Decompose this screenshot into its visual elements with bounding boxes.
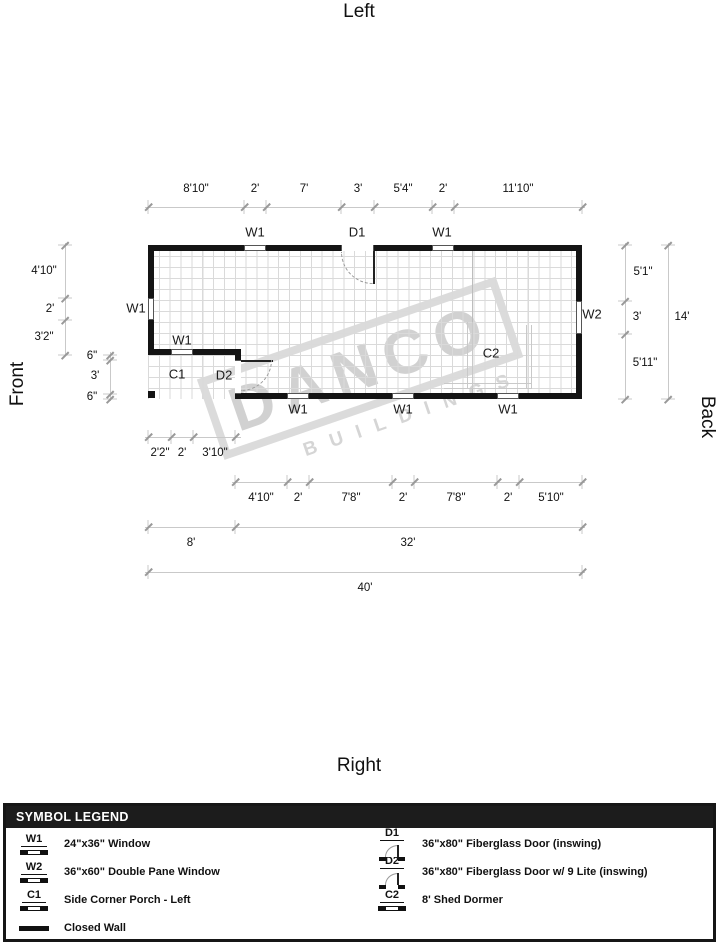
porch-glyph-icon bbox=[20, 906, 48, 911]
dim-label: 11'10" bbox=[502, 183, 533, 195]
dim-tick bbox=[618, 301, 632, 302]
dim-label: 40' bbox=[358, 582, 373, 594]
legend-row-c1: C1 Side Corner Porch - Left bbox=[14, 886, 372, 914]
label-c2: C2 bbox=[483, 346, 500, 361]
wall-glyph-icon bbox=[19, 926, 49, 931]
orientation-bottom-label: Right bbox=[337, 755, 381, 777]
dim-tick bbox=[103, 360, 117, 361]
dim-tick bbox=[497, 475, 498, 489]
dim-tick bbox=[103, 355, 117, 356]
legend-code: C1 bbox=[22, 889, 46, 903]
door-glyph-icon bbox=[379, 872, 405, 889]
legend-desc: 36"x80" Fiberglass Door w/ 9 Lite (inswi… bbox=[422, 866, 648, 878]
porch-symbol: C1 bbox=[14, 889, 54, 911]
dim-tick bbox=[618, 334, 632, 335]
dim-tick bbox=[58, 298, 72, 299]
dim-label: 2' bbox=[178, 447, 187, 459]
dim-label: 5'1" bbox=[633, 266, 652, 278]
dim-label: 3' bbox=[354, 183, 363, 195]
dim-tick bbox=[454, 200, 455, 214]
dim-label: 2' bbox=[504, 492, 513, 504]
porch-post bbox=[148, 391, 155, 398]
dim-tick bbox=[171, 430, 172, 444]
dim-tick bbox=[432, 200, 433, 214]
dim-label: 4'10" bbox=[31, 265, 56, 277]
dim-tick bbox=[235, 520, 236, 534]
window-glyph-icon bbox=[20, 878, 48, 883]
symbol-legend: SYMBOL LEGEND W1 24"x36" Window W2 36"x6… bbox=[3, 803, 716, 942]
dim-label: 3' bbox=[633, 311, 642, 323]
orientation-left-label: Front bbox=[7, 362, 29, 406]
dim-label: 5'4" bbox=[393, 183, 412, 195]
label-d2: D2 bbox=[216, 368, 233, 383]
orientation-top-label: Left bbox=[343, 1, 375, 23]
dim-tick bbox=[582, 475, 583, 489]
legend-code: W1 bbox=[21, 833, 48, 847]
label-w1-bottom-c: W1 bbox=[498, 402, 518, 417]
dim-label: 7' bbox=[300, 183, 309, 195]
dim-label: 5'11" bbox=[633, 357, 658, 369]
window-w2-right bbox=[576, 301, 582, 334]
window-w1-bottom-b bbox=[392, 393, 414, 399]
orientation-right-label: Back bbox=[696, 396, 718, 438]
dim-label: 2' bbox=[251, 183, 260, 195]
label-d1: D1 bbox=[349, 225, 366, 240]
dim-tick bbox=[392, 475, 393, 489]
dim-tick bbox=[148, 520, 149, 534]
dim-label: 3'10" bbox=[202, 447, 227, 459]
legend-desc: 8' Shed Dormer bbox=[422, 894, 503, 906]
floorplan-page: Left Right Front Back DANCO BUILDINGS W1… bbox=[0, 0, 719, 943]
dim-line-right-total bbox=[668, 243, 669, 399]
window-symbol: W2 bbox=[14, 861, 54, 883]
dim-tick bbox=[148, 200, 149, 214]
dim-label: 5'10" bbox=[538, 492, 563, 504]
legend-code: W2 bbox=[21, 861, 48, 875]
wall-symbol bbox=[14, 926, 54, 931]
dim-label: 8' bbox=[187, 537, 196, 549]
dormer-left-edge bbox=[467, 322, 473, 388]
dim-tick bbox=[374, 200, 375, 214]
dim-line-section-totals bbox=[145, 527, 585, 528]
label-w1-top-b: W1 bbox=[432, 225, 452, 240]
legend-row-d2: D2 36"x80" Fiberglass Door w/ 9 Lite (in… bbox=[372, 858, 713, 886]
dim-label: 3'2" bbox=[34, 331, 53, 343]
dim-label: 7'8" bbox=[446, 492, 465, 504]
dim-label: 7'8" bbox=[341, 492, 360, 504]
window-glyph-icon bbox=[20, 850, 48, 855]
dim-tick bbox=[661, 245, 675, 246]
dim-line-right-inner bbox=[625, 243, 626, 399]
label-w1-bottom-b: W1 bbox=[393, 402, 413, 417]
legend-row-d1: D1 36"x80" Fiberglass Door (inswing) bbox=[372, 830, 713, 858]
dim-tick bbox=[58, 355, 72, 356]
dim-tick bbox=[266, 200, 267, 214]
legend-row-w1: W1 24"x36" Window bbox=[14, 830, 372, 858]
dim-label: 8'10" bbox=[183, 183, 208, 195]
dim-tick bbox=[103, 394, 117, 395]
legend-row-w2: W2 36"x60" Double Pane Window bbox=[14, 858, 372, 886]
dormer-symbol: C2 bbox=[372, 889, 412, 911]
legend-row-c2: C2 8' Shed Dormer bbox=[372, 886, 713, 914]
dim-tick bbox=[519, 475, 520, 489]
dim-tick bbox=[244, 200, 245, 214]
window-w1-top-a bbox=[244, 245, 266, 251]
dim-label: 32' bbox=[401, 537, 416, 549]
dim-tick bbox=[148, 565, 149, 579]
window-w1-bottom-c bbox=[497, 393, 519, 399]
legend-desc: 24"x36" Window bbox=[64, 838, 150, 850]
label-w1-bottom-a: W1 bbox=[288, 402, 308, 417]
window-w1-top-b bbox=[432, 245, 454, 251]
dim-label: 2'2" bbox=[150, 447, 169, 459]
dim-tick bbox=[414, 475, 415, 489]
dim-tick bbox=[148, 430, 149, 444]
legend-row-wall: Closed Wall bbox=[14, 914, 372, 942]
door-d1-opening bbox=[341, 245, 374, 251]
dim-label: 2' bbox=[46, 303, 55, 315]
dim-label: 6" bbox=[87, 350, 97, 362]
dim-tick bbox=[582, 520, 583, 534]
dormer-right-edge bbox=[526, 325, 532, 388]
dim-label: 4'10" bbox=[248, 492, 273, 504]
legend-title: SYMBOL LEGEND bbox=[6, 806, 713, 828]
dim-tick bbox=[661, 399, 675, 400]
dim-tick bbox=[58, 245, 72, 246]
label-w1-left: W1 bbox=[126, 301, 146, 316]
label-c1: C1 bbox=[169, 367, 186, 382]
dim-tick bbox=[582, 200, 583, 214]
window-w1-porch bbox=[171, 349, 193, 355]
dim-tick bbox=[287, 475, 288, 489]
label-w2: W2 bbox=[582, 307, 602, 322]
legend-desc: 36"x60" Double Pane Window bbox=[64, 866, 220, 878]
label-w1-top-a: W1 bbox=[245, 225, 265, 240]
dim-line-top bbox=[145, 207, 585, 208]
dim-tick bbox=[582, 565, 583, 579]
dim-tick bbox=[618, 245, 632, 246]
dim-label: 14' bbox=[675, 311, 690, 323]
dim-tick bbox=[58, 320, 72, 321]
dim-line-overall bbox=[145, 572, 585, 573]
dim-label: 2' bbox=[399, 492, 408, 504]
legend-code: C2 bbox=[380, 889, 404, 903]
dormer-glyph-icon bbox=[378, 906, 406, 911]
dim-tick bbox=[103, 399, 117, 400]
dim-tick bbox=[618, 399, 632, 400]
dim-tick bbox=[235, 430, 236, 444]
door-glyph-icon bbox=[379, 844, 405, 861]
label-w1-porch: W1 bbox=[172, 333, 192, 348]
legend-desc: Closed Wall bbox=[64, 922, 126, 934]
legend-code: D1 bbox=[380, 827, 404, 841]
dim-tick bbox=[341, 200, 342, 214]
window-symbol: W1 bbox=[14, 833, 54, 855]
window-w1-left bbox=[148, 298, 154, 320]
legend-desc: Side Corner Porch - Left bbox=[64, 894, 191, 906]
wall-porch-back bbox=[148, 349, 241, 355]
window-w1-bottom-a bbox=[287, 393, 309, 399]
dim-label: 2' bbox=[294, 492, 303, 504]
dormer-front-edge bbox=[444, 383, 532, 389]
dim-label: 2' bbox=[439, 183, 448, 195]
dim-label: 3' bbox=[91, 370, 100, 382]
dim-tick bbox=[193, 430, 194, 444]
dim-tick bbox=[309, 475, 310, 489]
dim-tick bbox=[235, 475, 236, 489]
dim-label: 6" bbox=[87, 391, 97, 403]
legend-desc: 36"x80" Fiberglass Door (inswing) bbox=[422, 838, 601, 850]
